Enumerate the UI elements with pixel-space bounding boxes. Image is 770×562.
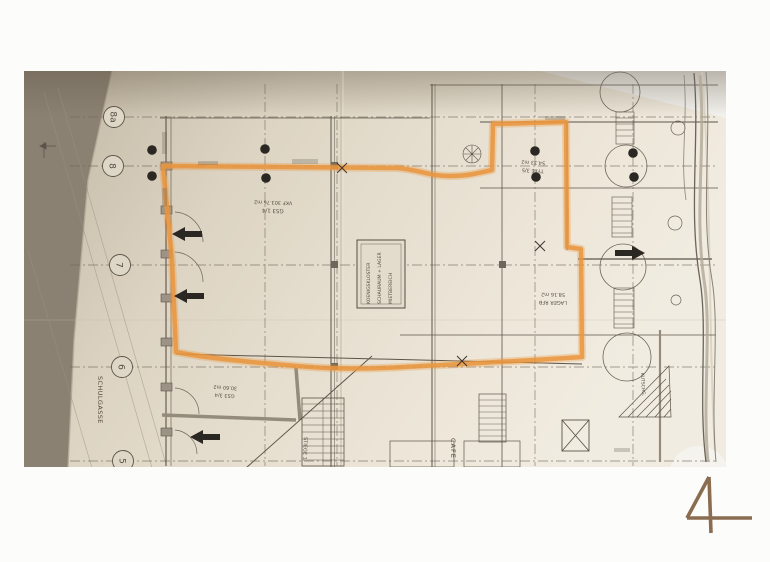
side-street-label: KUTSCHG. bbox=[639, 373, 646, 396]
room-label-line: TYPE 3/5 bbox=[522, 166, 545, 173]
title-stamp: KOENIGSKLOSTER SCHAURAUM + LAGER MIETBER… bbox=[357, 240, 405, 308]
grid-bubble: 5 bbox=[113, 451, 134, 468]
grid-bubble-label: 6 bbox=[116, 364, 126, 370]
floorplan-photo: 8a 8 7 6 5 bbox=[24, 71, 726, 467]
grid-bubble-label: 8 bbox=[107, 163, 117, 169]
marker-dot bbox=[628, 148, 638, 158]
grid-bubble: 8a bbox=[104, 107, 125, 128]
room-label-line: GS3 1/4 bbox=[261, 207, 284, 214]
cafe-label: CAFE bbox=[449, 438, 457, 459]
grid-bubble: 8 bbox=[103, 156, 124, 177]
marker-dot bbox=[147, 171, 157, 181]
room-label-line: 58.16 m2 bbox=[541, 291, 565, 297]
grid-bubble-label: 8a bbox=[108, 111, 118, 122]
marker-dot bbox=[261, 173, 271, 183]
marker-dot bbox=[530, 146, 540, 156]
grid-bubble-label: 7 bbox=[114, 262, 124, 268]
stiege-label: STIEGE 1 bbox=[301, 437, 308, 460]
spiral-stair bbox=[463, 145, 481, 163]
marker-dot bbox=[260, 144, 270, 154]
marker-dot bbox=[629, 172, 639, 182]
photo-top-shadow bbox=[24, 71, 726, 117]
grid-bubble: 6 bbox=[112, 357, 133, 378]
stamp-line: MIETBEREICH bbox=[388, 273, 394, 304]
brochure-page: 8a 8 7 6 5 bbox=[0, 0, 770, 562]
floorplan-drawing: 8a 8 7 6 5 bbox=[24, 71, 726, 467]
room-label-line: 54.33 m2 bbox=[521, 158, 545, 165]
grid-bubble-label: 5 bbox=[117, 458, 127, 464]
marker-dot bbox=[147, 145, 157, 155]
stamp-line: SCHAURAUM + LAGER bbox=[377, 251, 383, 304]
grid-bubble: 7 bbox=[110, 255, 131, 276]
page-number-numeral bbox=[687, 477, 752, 533]
room-label-line: LAGER RFB bbox=[538, 299, 567, 305]
street-name-label: SCHULGASSE bbox=[96, 376, 104, 424]
stamp-line: KOENIGSKLOSTER bbox=[366, 262, 372, 304]
